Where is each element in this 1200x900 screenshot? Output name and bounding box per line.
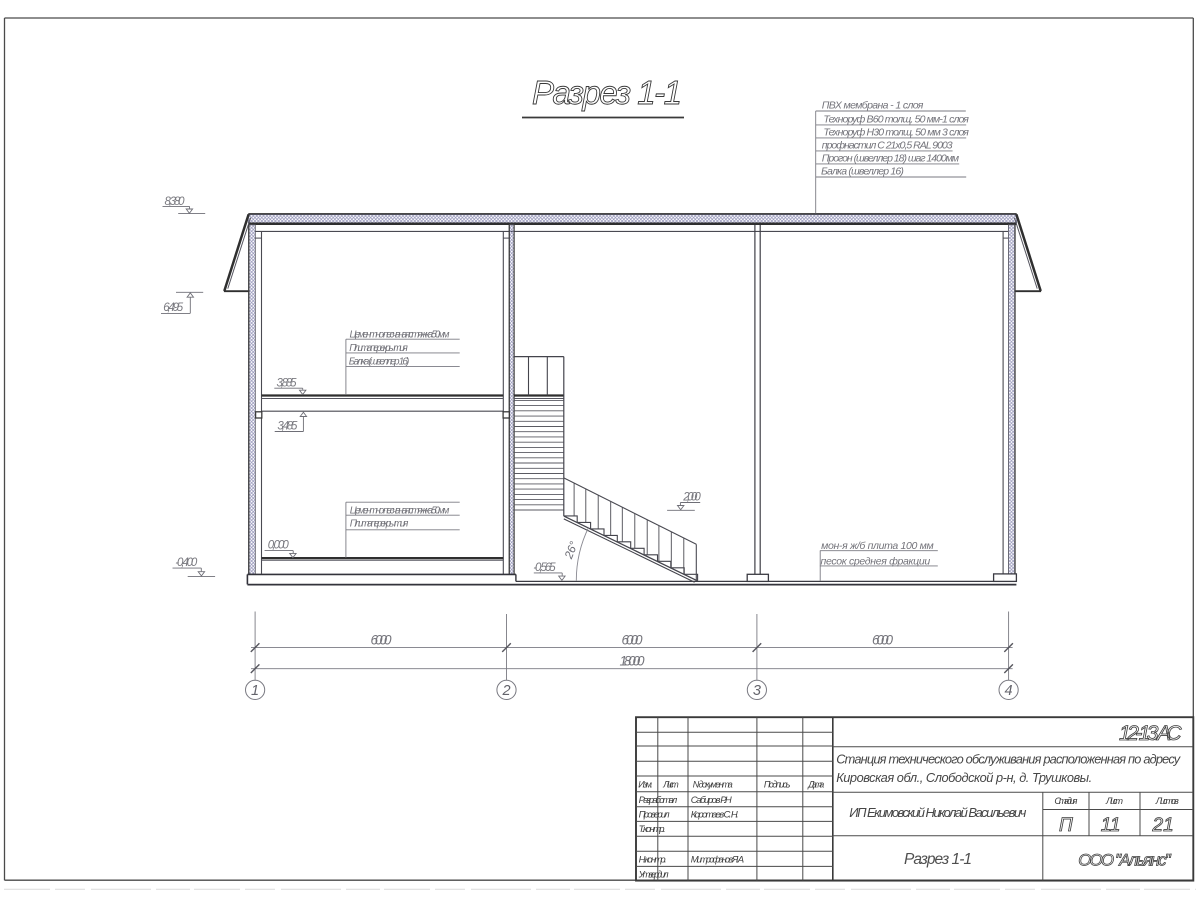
svg-text:Дата: Дата bbox=[807, 779, 824, 789]
svg-text:Плита перекрытия: Плита перекрытия bbox=[350, 518, 409, 529]
svg-text:Балка (швеллер 16): Балка (швеллер 16) bbox=[349, 356, 410, 367]
svg-text:3,485: 3,485 bbox=[277, 421, 298, 433]
svg-text:Коротаев С. Н.: Коротаев С. Н. bbox=[691, 809, 739, 820]
svg-text:Лист: Лист bbox=[662, 779, 679, 789]
svg-text:2,000: 2,000 bbox=[682, 491, 701, 503]
svg-text:-0,400: -0,400 bbox=[175, 557, 198, 569]
svg-text:12-13 АС: 12-13 АС bbox=[1119, 722, 1182, 745]
svg-text:мон-я ж/б плита 100 мм: мон-я ж/б плита 100 мм bbox=[821, 540, 934, 552]
svg-text:6000: 6000 bbox=[371, 633, 392, 648]
svg-text:0,000: 0,000 bbox=[268, 539, 290, 551]
svg-text:Н.контр.: Н.контр. bbox=[639, 854, 667, 865]
svg-text:6000: 6000 bbox=[872, 633, 893, 648]
svg-text:Разрез 1-1: Разрез 1-1 bbox=[532, 74, 682, 111]
svg-text:Т.контр.: Т.контр. bbox=[639, 824, 666, 835]
svg-text:6000: 6000 bbox=[622, 633, 643, 648]
svg-text:4: 4 bbox=[1005, 683, 1013, 699]
svg-text:Лист: Лист bbox=[1105, 796, 1123, 807]
svg-text:Станция технического обслужива: Станция технического обслуживания распол… bbox=[836, 752, 1182, 767]
svg-text:Кировская обл., Слободской р-н: Кировская обл., Слободской р-н, д. Трушк… bbox=[836, 770, 1092, 785]
svg-text:Проверил: Проверил bbox=[639, 809, 671, 820]
svg-text:Утвердил: Утвердил bbox=[638, 869, 670, 880]
svg-text:П: П bbox=[1059, 815, 1073, 836]
svg-text:Митрофанов Я. А.: Митрофанов Я. А. bbox=[691, 854, 745, 865]
svg-text:Листов: Листов bbox=[1155, 796, 1179, 807]
svg-text:11: 11 bbox=[1101, 815, 1121, 836]
svg-text:-0,565: -0,565 bbox=[533, 562, 556, 574]
svg-text:3,885: 3,885 bbox=[277, 377, 298, 389]
svg-text:Стадия: Стадия bbox=[1054, 796, 1077, 807]
svg-text:профнастил С 21х0,5 RAL 9003: профнастил С 21х0,5 RAL 9003 bbox=[822, 140, 953, 152]
svg-text:21: 21 bbox=[1152, 815, 1174, 836]
svg-text:Плита перекрытия: Плита перекрытия bbox=[349, 343, 408, 354]
svg-text:ПВХ мембрана - 1 слоя: ПВХ мембрана - 1 слоя bbox=[822, 100, 924, 112]
svg-text:18000: 18000 bbox=[620, 654, 645, 669]
svg-text:Техноруф Н30 толщ. 50 мм 3 сло: Техноруф Н30 толщ. 50 мм 3 слоя bbox=[823, 127, 969, 139]
svg-text:2: 2 bbox=[501, 683, 510, 699]
svg-text:Прогон (швеллер 18) шаг 1400мм: Прогон (швеллер 18) шаг 1400мм bbox=[822, 153, 959, 165]
svg-text:Балка (швеллер 16): Балка (швеллер 16) bbox=[821, 166, 904, 178]
svg-text:1: 1 bbox=[251, 683, 259, 699]
svg-text:Разрез 1-1: Разрез 1-1 bbox=[904, 851, 972, 868]
svg-text:ИП Екимовский Николай Васильев: ИП Екимовский Николай Васильевич bbox=[849, 805, 1026, 820]
svg-text:N документа: N документа bbox=[693, 779, 733, 789]
svg-text:Разработал: Разработал bbox=[639, 795, 678, 806]
svg-text:ООО "Альянс": ООО "Альянс" bbox=[1078, 851, 1171, 870]
svg-text:Техноруф В60 толщ. 50 мм-1 сло: Техноруф В60 толщ. 50 мм-1 слоя bbox=[823, 114, 969, 126]
svg-text:Цементно-песчаная стяжка 50мм: Цементно-песчаная стяжка 50мм bbox=[350, 329, 450, 340]
svg-text:3: 3 bbox=[753, 683, 761, 699]
svg-text:Сабиров Р.Н: Сабиров Р.Н bbox=[691, 795, 732, 806]
svg-text:Изм.: Изм. bbox=[638, 779, 653, 789]
svg-text:Подпись: Подпись bbox=[764, 779, 791, 789]
svg-text:6,495: 6,495 bbox=[163, 302, 184, 314]
